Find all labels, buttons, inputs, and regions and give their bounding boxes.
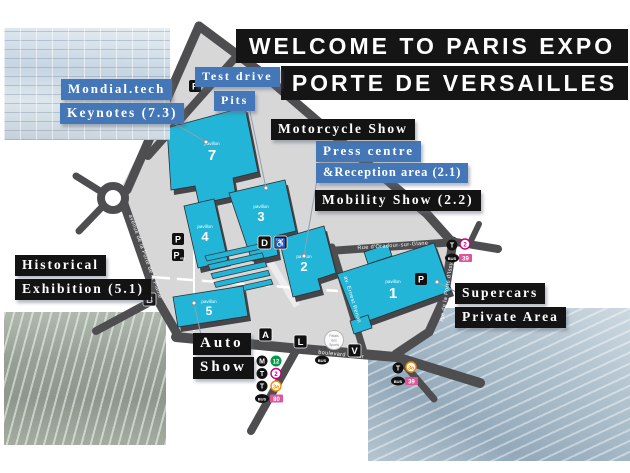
- svg-text:BUS: BUS: [394, 379, 403, 384]
- label-mobility-show: Mobility Show (2.2): [315, 190, 481, 211]
- svg-text:BUS: BUS: [258, 396, 267, 401]
- svg-text:P: P: [175, 235, 181, 245]
- gate-marker-a: A: [259, 328, 272, 341]
- label-reception-area: &Reception area (2.1): [316, 163, 468, 183]
- svg-text:V: V: [351, 346, 358, 357]
- svg-text:T: T: [396, 366, 401, 373]
- bus-stop-icon: BUS: [315, 356, 329, 365]
- pavilion-7-number: 7: [208, 147, 216, 164]
- parking-icon-west: P: [172, 233, 184, 245]
- gate-marker-d: D: [258, 236, 271, 249]
- gate-marker-l: L: [294, 335, 307, 348]
- gate-marker-v: V: [348, 344, 361, 357]
- svg-text:T: T: [260, 371, 265, 378]
- svg-text:P: P: [173, 251, 179, 261]
- svg-text:L: L: [298, 337, 304, 348]
- label-historical: Historical: [15, 255, 106, 276]
- pavilion-3-number: 3: [257, 209, 264, 224]
- svg-text:3a: 3a: [408, 366, 415, 372]
- title-banner-line1: WELCOME TO PARIS EXPO: [236, 29, 628, 63]
- svg-text:D: D: [261, 238, 268, 249]
- label-exhibition: Exhibition (5.1): [15, 279, 151, 300]
- svg-text:39: 39: [408, 379, 415, 385]
- label-motorcycle-show: Motorcycle Show: [271, 119, 415, 140]
- pavilion-5-number: 5: [206, 304, 213, 318]
- label-pits: Pits: [214, 91, 255, 111]
- title-banner-line2: PORTE DE VERSAILLES: [281, 66, 628, 100]
- paris-expo-map-poster: pavillon 7 pavillon 3 pavillon 4 pavillo…: [0, 0, 630, 473]
- svg-text:80: 80: [273, 397, 280, 403]
- svg-text:T: T: [450, 243, 455, 250]
- svg-text:A: A: [262, 330, 269, 341]
- wheelchair-access-icon: ♿: [274, 236, 287, 249]
- label-test-drive: Test drive: [195, 67, 280, 87]
- svg-text:M: M: [259, 359, 265, 366]
- pavilion-1-number: 1: [389, 285, 397, 302]
- pavilion-2-number: 2: [300, 259, 307, 274]
- svg-text:39: 39: [462, 256, 469, 262]
- label-mondial-tech: Mondial.tech: [61, 79, 172, 100]
- parking-vip-icon: P vip: [172, 249, 185, 261]
- label-auto: Auto: [193, 333, 251, 355]
- pavilion-4-number: 4: [201, 229, 209, 244]
- svg-text:BUS: BUS: [318, 358, 327, 363]
- label-private-area: Private Area: [455, 307, 566, 328]
- roundabout-spoke-southwest: [79, 206, 103, 231]
- svg-text:♿: ♿: [275, 237, 286, 248]
- svg-text:vip: vip: [180, 257, 185, 261]
- palais-text-3: Sports: [329, 343, 339, 347]
- label-keynotes: Keynotes (7.3): [60, 103, 184, 124]
- roundabout-spoke-west: [76, 176, 100, 191]
- palais-text-2: des: [331, 339, 337, 343]
- svg-text:12: 12: [273, 360, 280, 366]
- svg-text:P: P: [418, 275, 424, 285]
- label-show: Show: [193, 357, 254, 379]
- label-press-centre: Press centre: [316, 141, 421, 162]
- parking-icon-pavilion1: P: [415, 273, 427, 285]
- palais-des-sports: Palais des Sports: [325, 331, 344, 350]
- pavilion-1-caption: pavillon: [385, 279, 401, 284]
- svg-text:BUS: BUS: [448, 256, 457, 261]
- svg-text:T: T: [260, 384, 265, 391]
- label-supercars: Supercars: [455, 283, 545, 304]
- svg-text:3a: 3a: [273, 385, 280, 391]
- palais-text-1: Palais: [329, 334, 339, 338]
